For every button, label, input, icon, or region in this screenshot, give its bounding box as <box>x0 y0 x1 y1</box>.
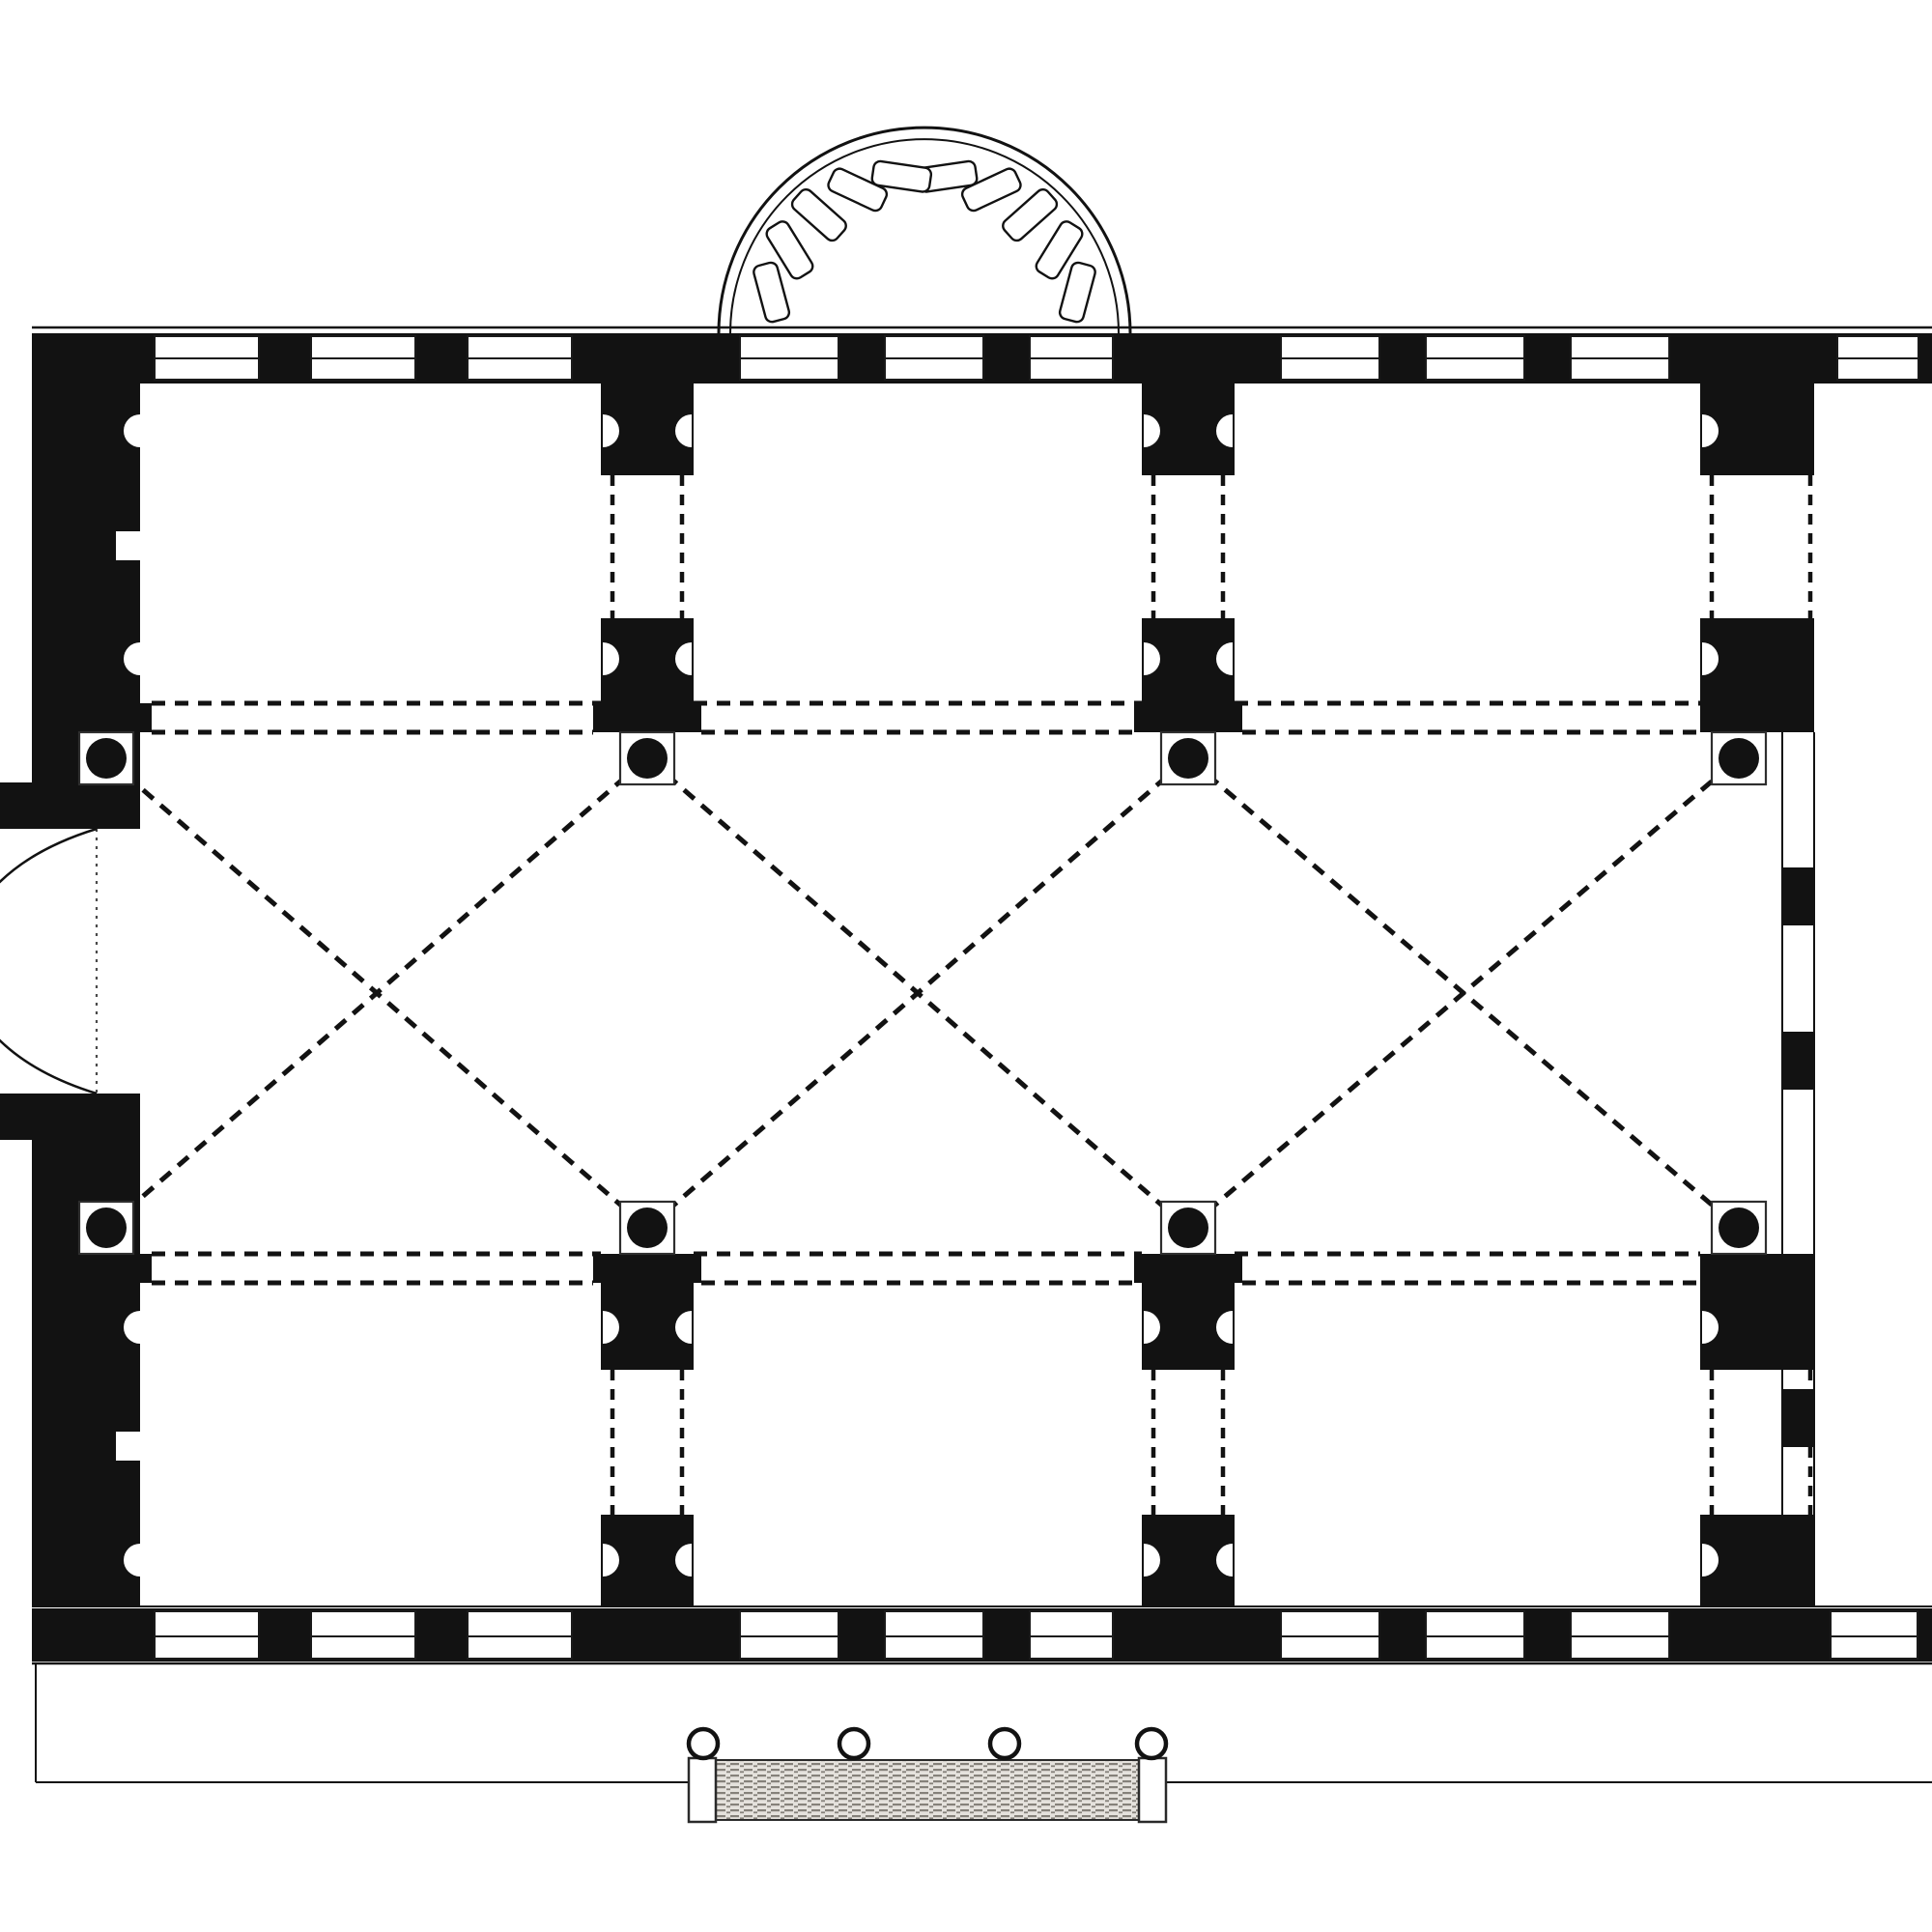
column <box>1168 738 1208 779</box>
floor-plan-page <box>0 0 1932 1932</box>
column <box>627 738 668 779</box>
stair-end-block <box>689 1758 716 1822</box>
porch-column <box>1137 1729 1166 1758</box>
column <box>86 738 127 779</box>
porch-column <box>689 1729 718 1758</box>
stair-end-block <box>1139 1758 1166 1822</box>
column <box>627 1207 668 1248</box>
stair-hatched-block <box>716 1760 1139 1820</box>
porch-column <box>990 1729 1019 1758</box>
column <box>86 1207 127 1248</box>
porch-column <box>839 1729 868 1758</box>
basilica-floor-plan-drawing <box>0 0 1932 1932</box>
column <box>1719 738 1759 779</box>
column <box>1168 1207 1208 1248</box>
column <box>1719 1207 1759 1248</box>
